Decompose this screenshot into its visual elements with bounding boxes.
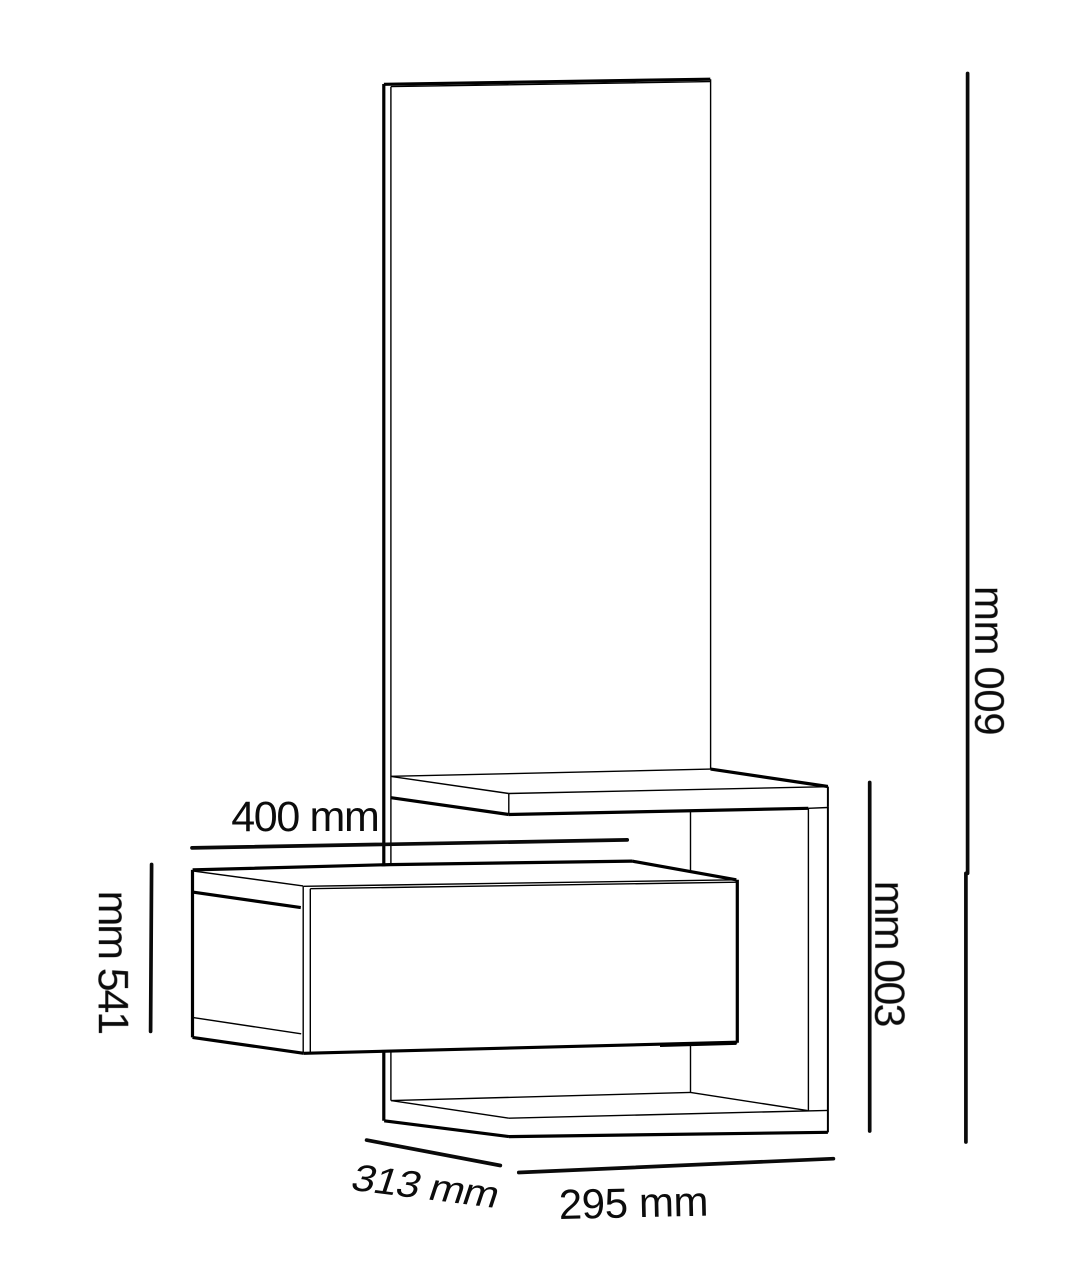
svg-text:mm 009: mm 009 [966,586,1013,735]
svg-text:mm 003: mm 003 [865,881,913,1027]
svg-text:mm 541: mm 541 [89,891,137,1034]
svg-text:400 mm: 400 mm [231,793,378,841]
svg-text:295 mm: 295 mm [558,1178,708,1228]
